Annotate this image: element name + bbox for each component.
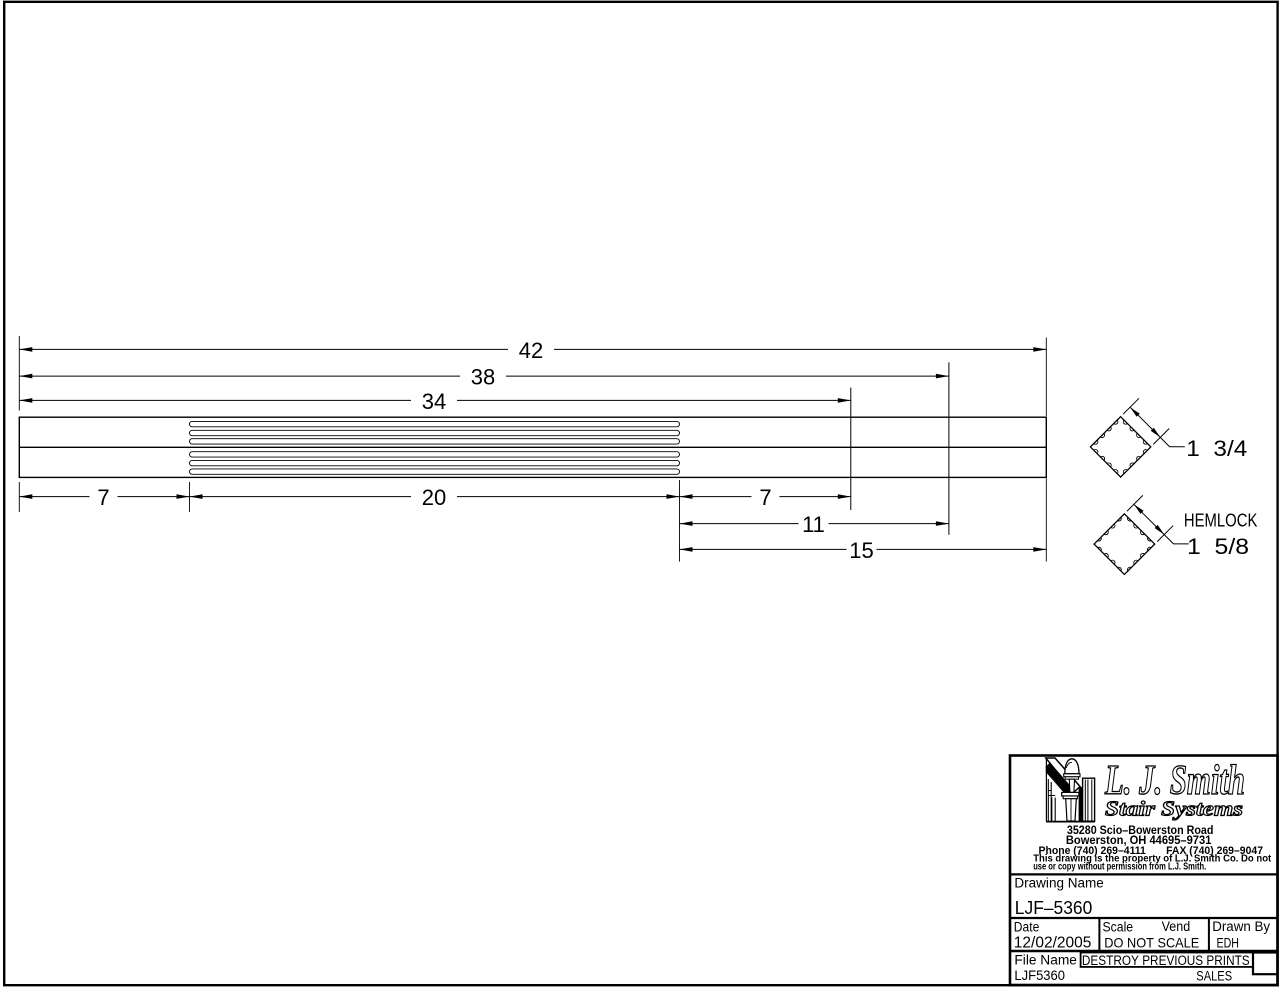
svg-text:EDH: EDH [1217,934,1240,950]
svg-text:15: 15 [849,538,873,563]
svg-text:1 3/4: 1 3/4 [1186,436,1247,461]
svg-text:Vend: Vend [1162,919,1191,934]
svg-text:42: 42 [519,338,543,363]
svg-text:HEMLOCK: HEMLOCK [1184,511,1258,531]
svg-text:7: 7 [97,485,109,510]
svg-text:LJF–5360: LJF–5360 [1015,897,1093,918]
svg-text:34: 34 [422,389,446,414]
svg-text:1 5/8: 1 5/8 [1187,534,1249,559]
svg-text:38: 38 [471,365,495,390]
svg-text:11: 11 [802,512,825,537]
svg-text:20: 20 [422,485,446,510]
svg-text:DO NOT SCALE: DO NOT SCALE [1104,934,1199,950]
svg-text:SALES: SALES [1196,967,1232,983]
svg-text:7: 7 [759,485,771,510]
svg-text:LJF5360: LJF5360 [1014,967,1065,983]
svg-text:Stair Systems: Stair Systems [1105,797,1243,821]
svg-text:Scale: Scale [1103,920,1134,935]
svg-text:DESTROY PREVIOUS PRINTS: DESTROY PREVIOUS PRINTS [1082,953,1250,968]
svg-text:Drawing Name: Drawing Name [1014,876,1103,891]
svg-text:use or copy without permission: use or copy without permission from L.J.… [1033,862,1206,873]
svg-text:File Name: File Name [1014,952,1077,967]
svg-text:Drawn By: Drawn By [1212,919,1270,934]
svg-text:12/02/2005: 12/02/2005 [1014,935,1092,952]
svg-text:Date: Date [1014,920,1040,935]
